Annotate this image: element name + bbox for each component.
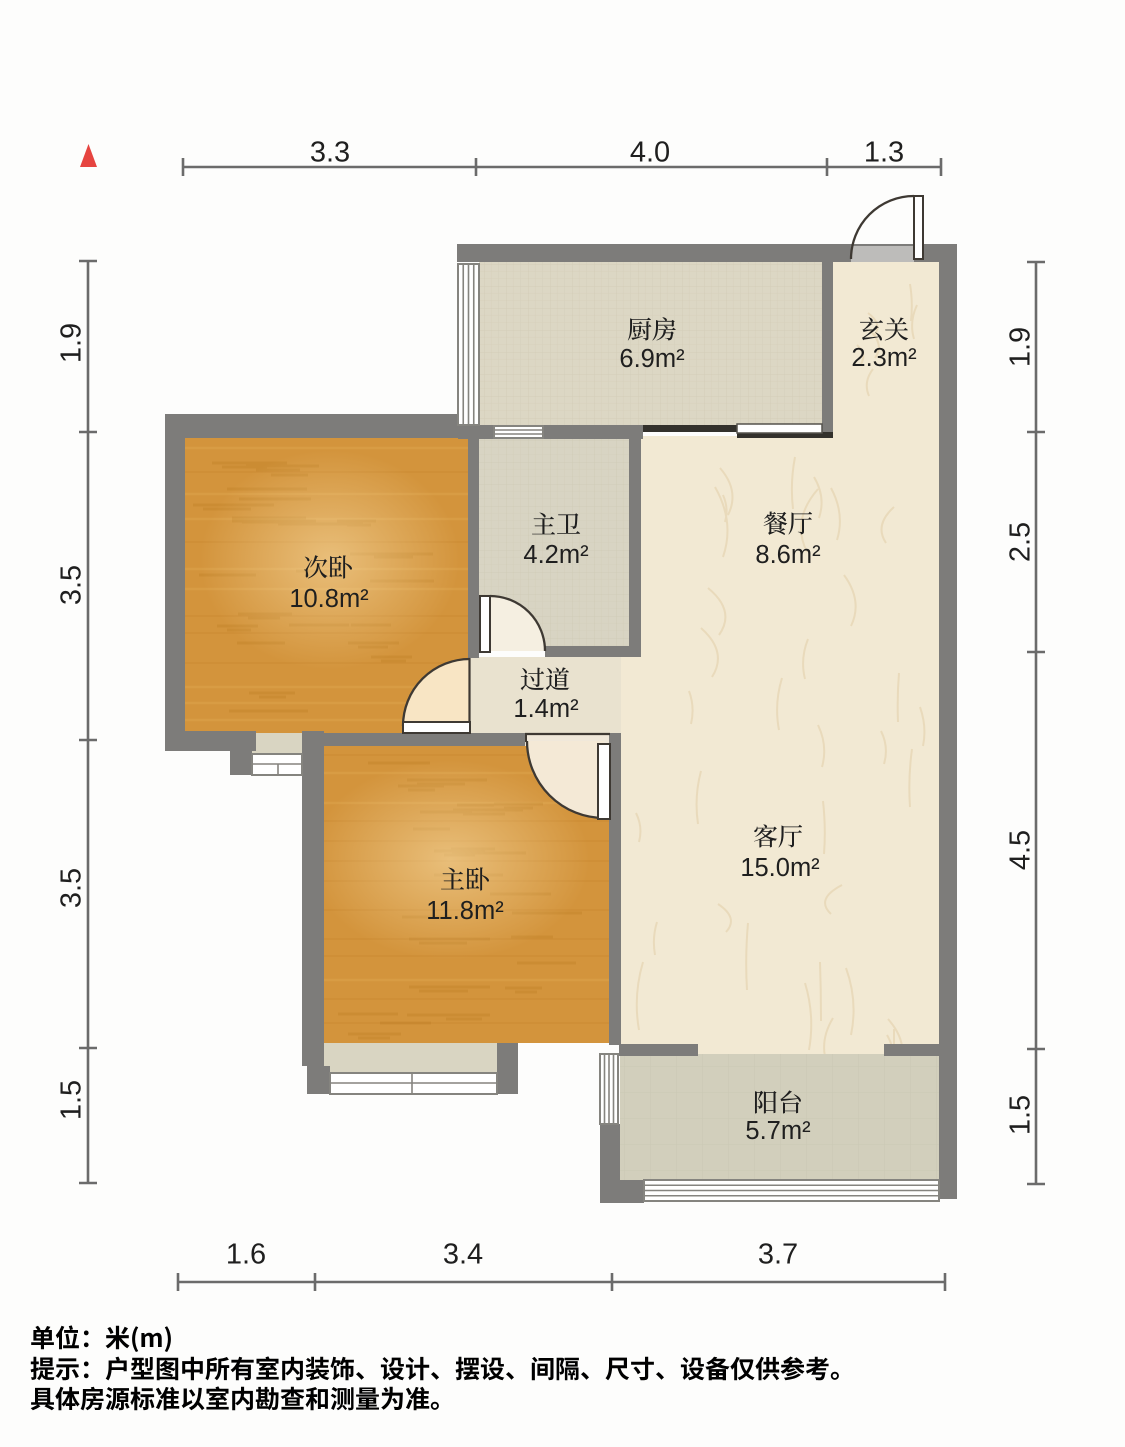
svg-text:2.5: 2.5 [1004,522,1036,562]
svg-text:1.6: 1.6 [226,1238,266,1270]
svg-text:5.7m²: 5.7m² [745,1117,810,1145]
svg-text:4.2m²: 4.2m² [523,541,588,569]
svg-text:15.0m²: 15.0m² [740,854,819,882]
svg-text:11.8m²: 11.8m² [426,897,503,925]
svg-text:8.6m²: 8.6m² [755,541,820,569]
svg-text:4.5: 4.5 [1004,830,1036,870]
svg-text:4.0: 4.0 [630,136,670,168]
svg-text:6.9m²: 6.9m² [619,345,684,373]
svg-text:3.4: 3.4 [443,1238,483,1270]
svg-text:3.5: 3.5 [55,868,87,908]
svg-text:3.7: 3.7 [758,1238,798,1270]
svg-text:3.3: 3.3 [310,136,350,168]
svg-text:1.5: 1.5 [55,1080,87,1120]
svg-text:10.8m²: 10.8m² [289,585,368,613]
svg-text:1.5: 1.5 [1004,1095,1036,1135]
svg-text:3.5: 3.5 [55,565,87,605]
svg-text:2.3m²: 2.3m² [851,344,916,372]
svg-text:1.4m²: 1.4m² [513,695,578,723]
svg-text:1.3: 1.3 [864,136,904,168]
svg-text:1.9: 1.9 [1004,327,1036,367]
svg-text:1.9: 1.9 [55,323,87,363]
